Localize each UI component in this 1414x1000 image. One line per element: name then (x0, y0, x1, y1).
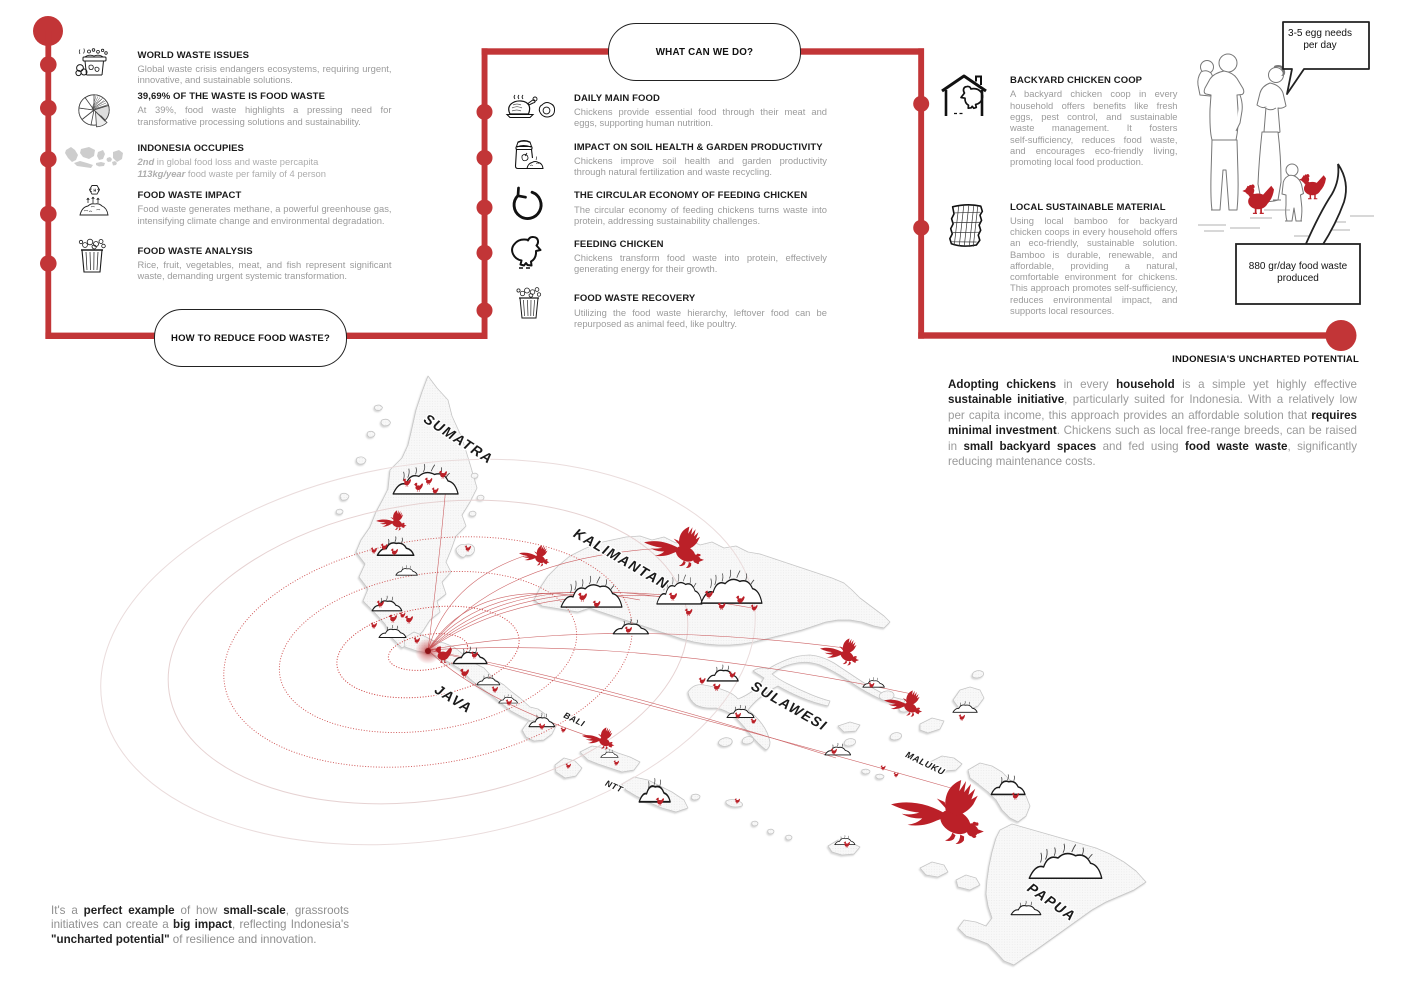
svg-text:NTT: NTT (604, 778, 625, 795)
svg-text:KALIMANTAN: KALIMANTAN (571, 525, 672, 592)
svg-text:PAPUA: PAPUA (1025, 879, 1080, 924)
svg-text:MALUKU: MALUKU (904, 749, 947, 777)
svg-text:SULAWESI: SULAWESI (749, 677, 831, 733)
svg-text:BALI: BALI (562, 710, 586, 729)
svg-text:JAVA: JAVA (432, 681, 475, 716)
svg-text:SUMATRA: SUMATRA (421, 410, 496, 467)
